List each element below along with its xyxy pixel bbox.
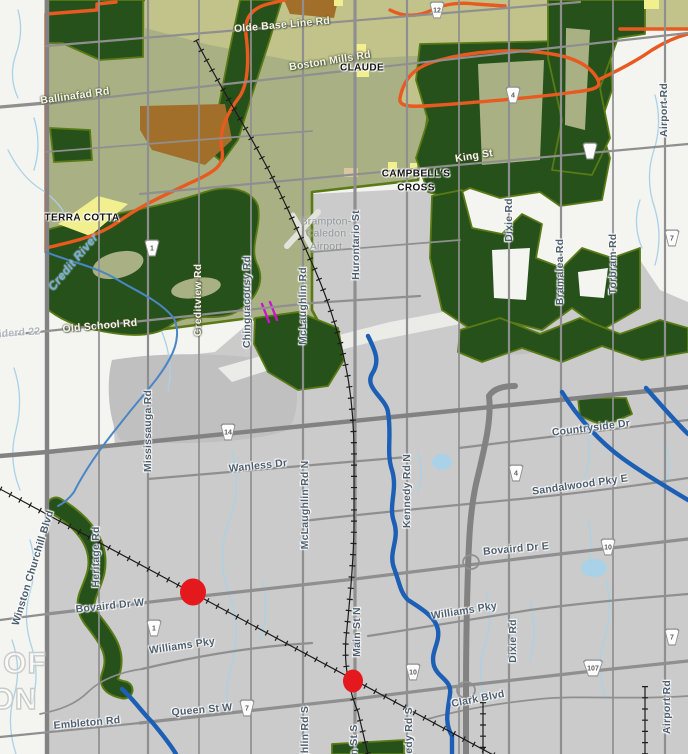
route-number: 7 [670, 235, 674, 242]
settlement-patch [644, 0, 659, 9]
forest-small-west [50, 128, 92, 162]
red-point-marker[interactable] [343, 670, 363, 693]
settlement-patch [388, 162, 397, 175]
route-number: 1 [152, 625, 156, 632]
map-canvas[interactable]: 124171441017101077 Olde Base Line RdBost… [0, 0, 688, 754]
clearing [492, 248, 530, 300]
pond-heart-lake [581, 559, 607, 577]
route-number: 12 [433, 7, 441, 14]
settlement-patch [334, 0, 343, 6]
map-base-layers [0, 0, 688, 754]
route-number: 107 [587, 665, 599, 672]
sage-clearing [478, 60, 544, 165]
pond [432, 454, 452, 470]
route-number: 14 [224, 429, 232, 436]
clearing [578, 268, 608, 298]
settlement-patch [356, 44, 366, 53]
route-number: 1 [150, 245, 154, 252]
route-number: 10 [409, 669, 417, 676]
forest-countryside-band [458, 318, 688, 362]
route-number: 4 [514, 470, 518, 477]
red-point-marker[interactable] [180, 579, 206, 606]
route-number: 7 [670, 634, 674, 641]
route-number: 7 [245, 705, 249, 712]
route-number: 10 [604, 544, 612, 551]
route-number: 4 [511, 92, 515, 99]
